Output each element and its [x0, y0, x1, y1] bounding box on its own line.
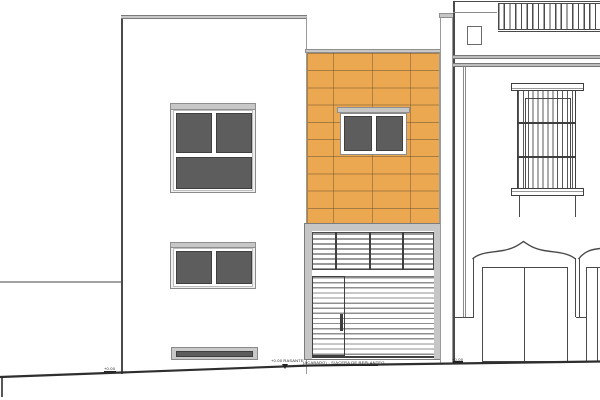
roof-box-vent — [467, 26, 482, 45]
elevation-canvas: +0.00 +0.00 RASANTE (ACABADO) - S/ACERA … — [0, 0, 600, 400]
ground-marker-center-level-label: +0.00 RASANTE — [271, 358, 304, 363]
arch-side-left — [473, 258, 474, 317]
roof-railing — [498, 3, 600, 30]
roof-railing-bottom-rail — [498, 31, 600, 32]
barred-window-sill — [511, 188, 584, 196]
ground-marker-left-tick — [104, 371, 116, 373]
right-building — [0, 0, 600, 400]
double-door-center-stile — [524, 267, 525, 362]
barred-window-rail-1 — [517, 122, 576, 124]
cornice-lower-band — [453, 63, 600, 68]
second-door-stile — [597, 267, 598, 362]
sill-corbel-right — [575, 196, 577, 217]
facade-pilaster-line — [463, 67, 466, 317]
ground-marker-center-triangle-icon — [282, 364, 288, 369]
sill-corbel-left — [519, 196, 521, 217]
second-arch-side — [579, 258, 580, 317]
barred-window-lintel — [511, 83, 584, 91]
barred-window-lintel-line — [512, 88, 583, 89]
right-roof-inner-line — [453, 12, 497, 13]
ground-marker-right-tick — [453, 361, 463, 363]
ground-marker-center-underline — [300, 365, 378, 366]
barred-window-rail-2 — [517, 156, 576, 158]
barred-window-sill-line — [512, 191, 583, 192]
second-door — [586, 267, 600, 362]
plinth-step-left — [454, 317, 474, 318]
barred-window-inner-frame — [525, 98, 571, 190]
arch-side-right — [575, 258, 576, 317]
cornice-upper-band — [453, 55, 600, 59]
